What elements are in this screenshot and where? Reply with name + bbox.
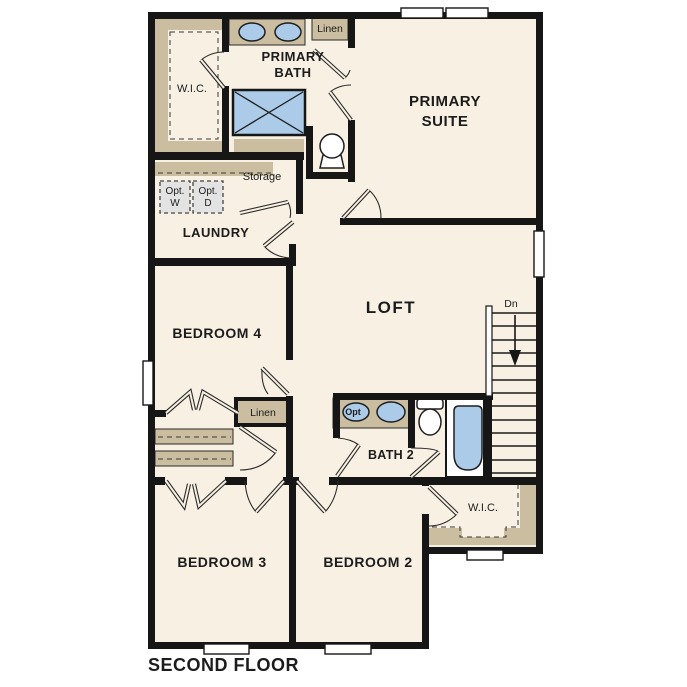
shower-curb — [234, 139, 304, 152]
bedroom4-window — [143, 361, 153, 405]
opt-dryer-label-line2: D — [204, 198, 211, 209]
bath2-label: BATH 2 — [368, 448, 414, 462]
primary-shower — [233, 90, 305, 135]
floor-title: SECOND FLOOR — [148, 655, 299, 675]
primary-suite-window-left — [401, 8, 443, 18]
floor-plan-page: PRIMARY BATH W.I.C. Linen PRIMARY SUITE … — [0, 0, 687, 687]
primary-wic-label: W.I.C. — [177, 83, 207, 95]
stairs-down-label: Dn — [504, 298, 518, 310]
bedroom3-window — [204, 644, 249, 654]
loft-window — [534, 231, 544, 277]
loft-label: LOFT — [366, 298, 416, 317]
bedroom2-wic-label: W.I.C. — [468, 502, 498, 514]
primary-suite-label-line1: PRIMARY — [409, 93, 481, 110]
bedroom4-closet-shelf — [155, 429, 233, 444]
bath2-toilet — [417, 399, 443, 435]
primary-bath-label-line2: BATH — [274, 65, 311, 80]
bedroom2-window — [325, 644, 371, 654]
bedroom3-label: BEDROOM 3 — [177, 554, 266, 570]
bath2-sink — [377, 402, 405, 422]
primary-suite-label-line2: SUITE — [422, 113, 469, 130]
bedroom4-label: BEDROOM 4 — [172, 325, 261, 341]
primary-sink-left — [239, 23, 265, 41]
primary-suite-window-right — [446, 8, 488, 18]
primary-toilet — [320, 134, 344, 168]
wic2-window — [467, 550, 503, 560]
opt-dryer-label-line1: Opt. — [199, 186, 218, 197]
floor-plan-drawing: PRIMARY BATH W.I.C. Linen PRIMARY SUITE … — [0, 0, 687, 687]
storage-label: Storage — [243, 171, 282, 183]
primary-sink-right — [275, 23, 301, 41]
primary-bath-label-line1: PRIMARY — [262, 49, 325, 64]
hall-linen-label: Linen — [250, 407, 276, 419]
opt-washer-label-line1: Opt. — [166, 186, 185, 197]
opt-washer-label-line2: W — [170, 198, 180, 209]
bath-linen-label: Linen — [317, 23, 343, 35]
bath2-opt-sink-label: Opt — [345, 407, 361, 417]
bedroom3-closet-shelf — [155, 451, 233, 466]
stair-rail — [486, 306, 492, 396]
bedroom2-label: BEDROOM 2 — [323, 554, 412, 570]
laundry-label: LAUNDRY — [183, 225, 250, 240]
